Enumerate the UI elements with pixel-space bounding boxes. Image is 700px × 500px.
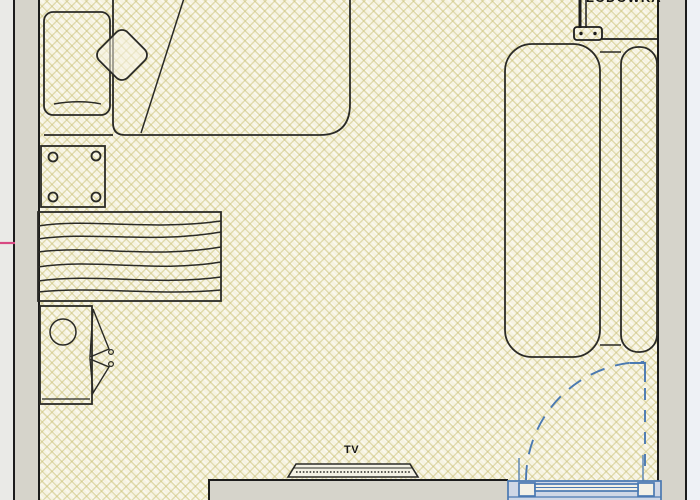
- sofa-seat: [505, 44, 600, 357]
- tv-set: [288, 464, 418, 477]
- cabinet-door-lower: [90, 359, 113, 393]
- side-table: [41, 146, 105, 207]
- plan-linework: [0, 0, 700, 500]
- entry-door: [508, 362, 661, 500]
- door-jamb-left: [519, 483, 535, 496]
- floor-plan-scan: LODÓWKA TV: [0, 0, 700, 500]
- pillow: [94, 27, 151, 84]
- door-swing-arc: [526, 362, 645, 480]
- fridge-hinge: [574, 0, 657, 40]
- sofa-backrest: [621, 47, 657, 352]
- blanket-fold-line: [141, 0, 186, 133]
- cabinet: [40, 306, 113, 404]
- rug-chest: [38, 212, 221, 301]
- tv-label: TV: [344, 444, 359, 456]
- door-jamb-right: [638, 483, 654, 496]
- fridge-label: LODÓWKA: [586, 0, 662, 5]
- sofa: [505, 44, 657, 357]
- door-arc-corner: [630, 363, 645, 382]
- armchair: [44, 12, 110, 115]
- cabinet-door-upper: [90, 309, 113, 357]
